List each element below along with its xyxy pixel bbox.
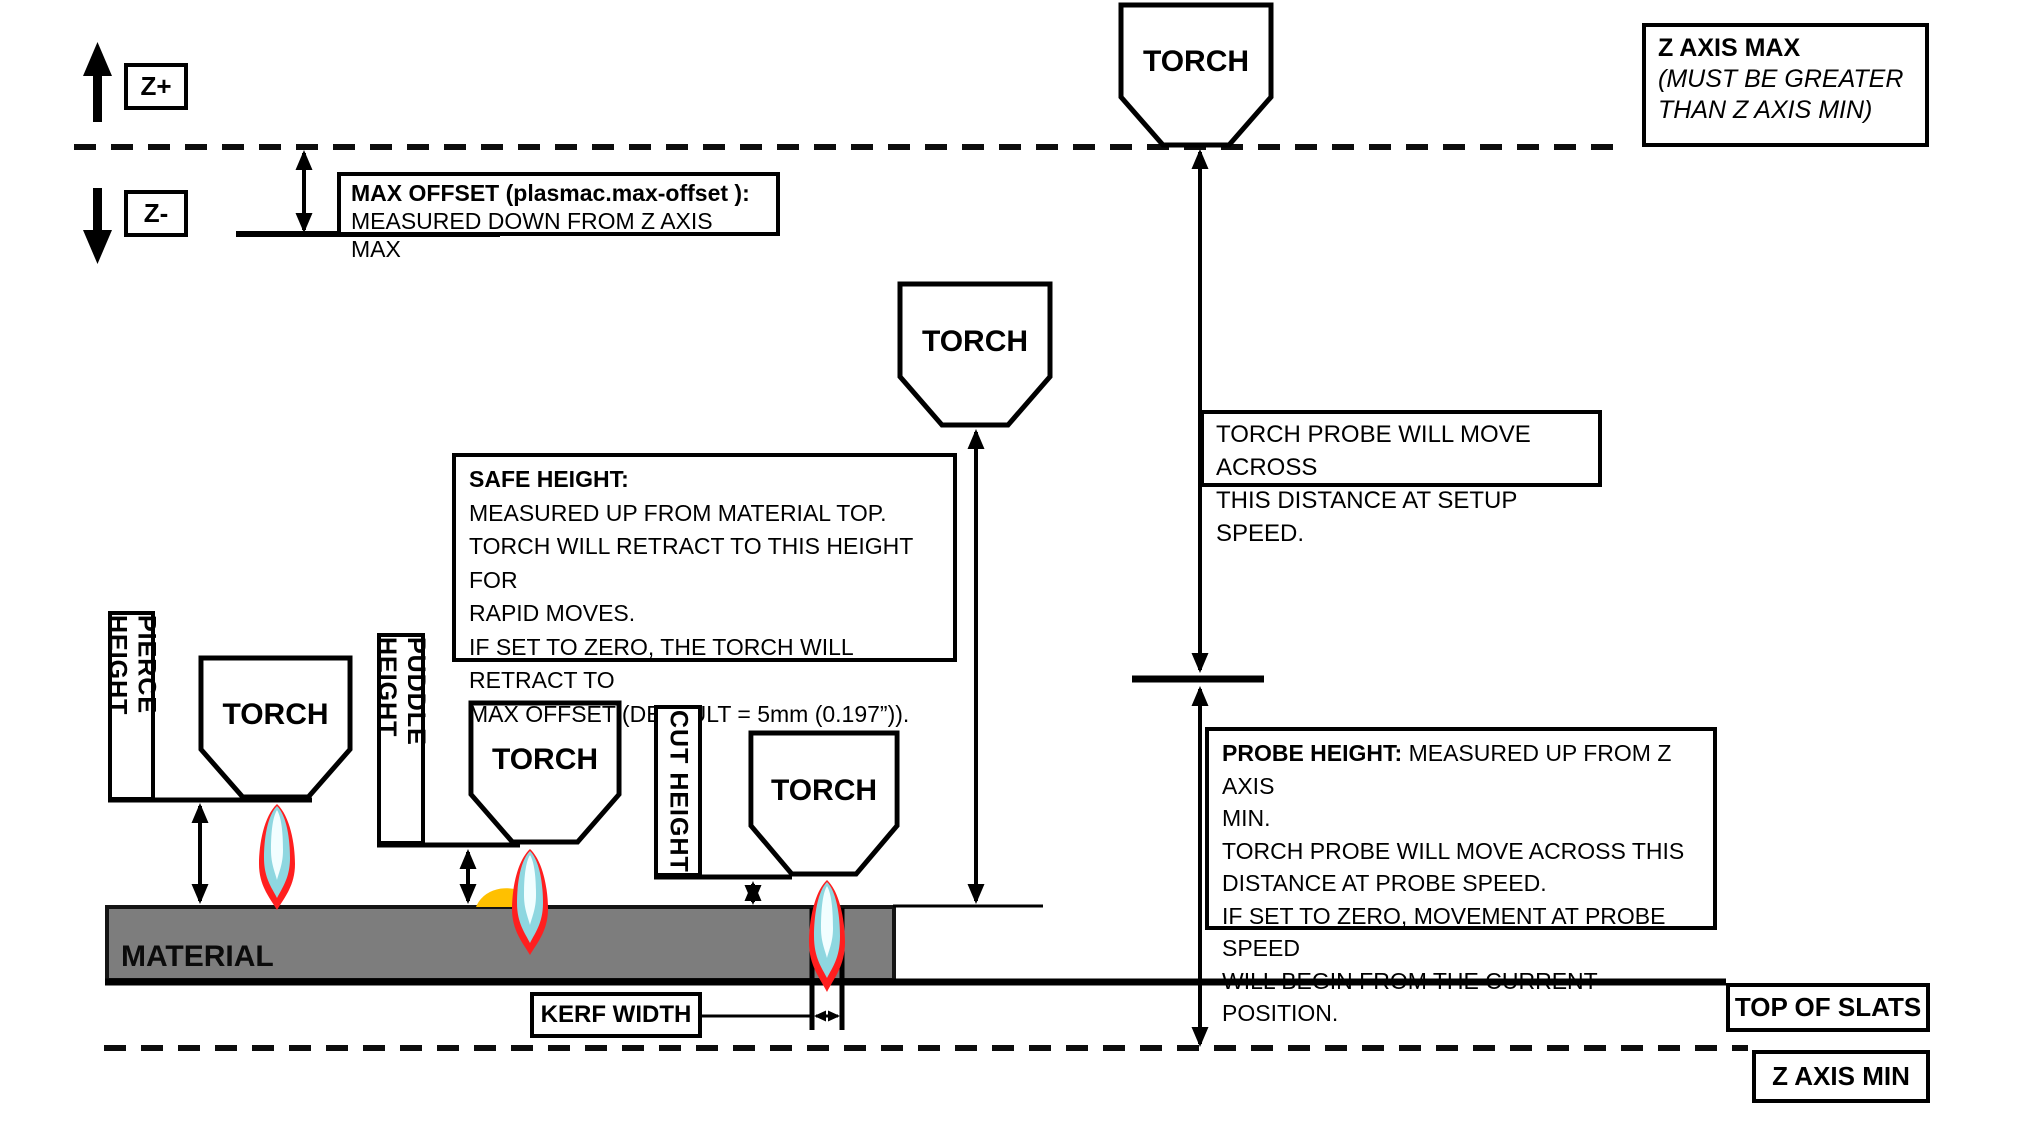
probe-height-heading: PROBE HEIGHT: <box>1222 740 1402 766</box>
z-axis-max-note2: THAN Z AXIS MIN) <box>1658 95 1872 126</box>
z-axis-min-text: Z AXIS MIN <box>1772 1061 1910 1092</box>
probe-height-text: PROBE HEIGHT: MEASURED UP FROM Z AXIS MI… <box>1222 737 1700 1030</box>
torch-shape-pierce: TORCH <box>198 655 353 800</box>
z-minus-label: Z- <box>124 190 188 237</box>
max-offset-callout: MAX OFFSET (plasmac.max-offset ): MEASUR… <box>337 172 780 236</box>
z-axis-max-title: Z AXIS MAX <box>1658 33 1800 64</box>
plasma-flame-icon <box>512 849 548 955</box>
plasma-flame-icon <box>259 804 295 910</box>
torch-probe-line1: TORCH PROBE WILL MOVE ACROSS <box>1216 418 1586 484</box>
puddle-height-label: PUDDLE HEIGHT <box>377 633 425 845</box>
z-minus-arrow-icon <box>83 188 112 264</box>
torch-probe-callout: TORCH PROBE WILL MOVE ACROSS THIS DISTAN… <box>1200 410 1602 487</box>
top-of-slats-text: TOP OF SLATS <box>1735 992 1921 1023</box>
safe-height-callout: SAFE HEIGHT: MEASURED UP FROM MATERIAL T… <box>452 453 957 662</box>
torch-label: TORCH <box>222 698 328 758</box>
z-axis-max-callout: Z AXIS MAX (MUST BE GREATER THAN Z AXIS … <box>1642 23 1929 147</box>
safe-height-text: SAFE HEIGHT: MEASURED UP FROM MATERIAL T… <box>469 463 940 731</box>
z-plus-arrow-icon <box>83 42 112 122</box>
puddle-height-text: PUDDLE HEIGHT <box>372 637 430 841</box>
torch-probe-line2: THIS DISTANCE AT SETUP SPEED. <box>1216 484 1586 550</box>
z-axis-max-note1: (MUST BE GREATER <box>1658 64 1903 95</box>
z-minus-text: Z- <box>144 198 169 229</box>
kerf-width-text: KERF WIDTH <box>541 1001 692 1029</box>
probe-height-callout: PROBE HEIGHT: MEASURED UP FROM Z AXIS MI… <box>1205 727 1717 930</box>
diagram-lines-layer <box>0 0 2038 1145</box>
torch-shape-safe-height: TORCH <box>897 281 1053 428</box>
torch-label: TORCH <box>922 325 1028 385</box>
torch-label: TORCH <box>771 774 877 834</box>
z-plus-label: Z+ <box>124 63 188 110</box>
torch-shape-cut: TORCH <box>748 730 900 877</box>
cut-height-text: CUT HEIGHT <box>664 710 693 873</box>
max-offset-title: MAX OFFSET (plasmac.max-offset ): <box>351 179 750 207</box>
kerf-width-label: KERF WIDTH <box>530 992 702 1038</box>
z-axis-min-label: Z AXIS MIN <box>1752 1050 1930 1103</box>
plasmac-height-diagram: MATERIAL <box>0 0 2038 1145</box>
safe-height-body: MEASURED UP FROM MATERIAL TOP. TORCH WIL… <box>469 500 913 727</box>
pierce-height-label: PIERCE HEIGHT <box>108 611 155 801</box>
max-offset-subtitle: MEASURED DOWN FROM Z AXIS MAX <box>351 207 766 263</box>
probe-height-body: MEASURED UP FROM Z AXIS MIN. TORCH PROBE… <box>1222 740 1684 1026</box>
safe-height-heading: SAFE HEIGHT: <box>469 466 629 492</box>
torch-label: TORCH <box>492 743 598 803</box>
torch-label: TORCH <box>1143 45 1249 105</box>
torch-shape-probe-start: TORCH <box>1118 2 1274 148</box>
pierce-height-text: PIERCE HEIGHT <box>103 615 161 797</box>
z-plus-text: Z+ <box>140 71 171 102</box>
top-of-slats-label: TOP OF SLATS <box>1726 983 1930 1032</box>
cut-height-label: CUT HEIGHT <box>654 705 702 877</box>
